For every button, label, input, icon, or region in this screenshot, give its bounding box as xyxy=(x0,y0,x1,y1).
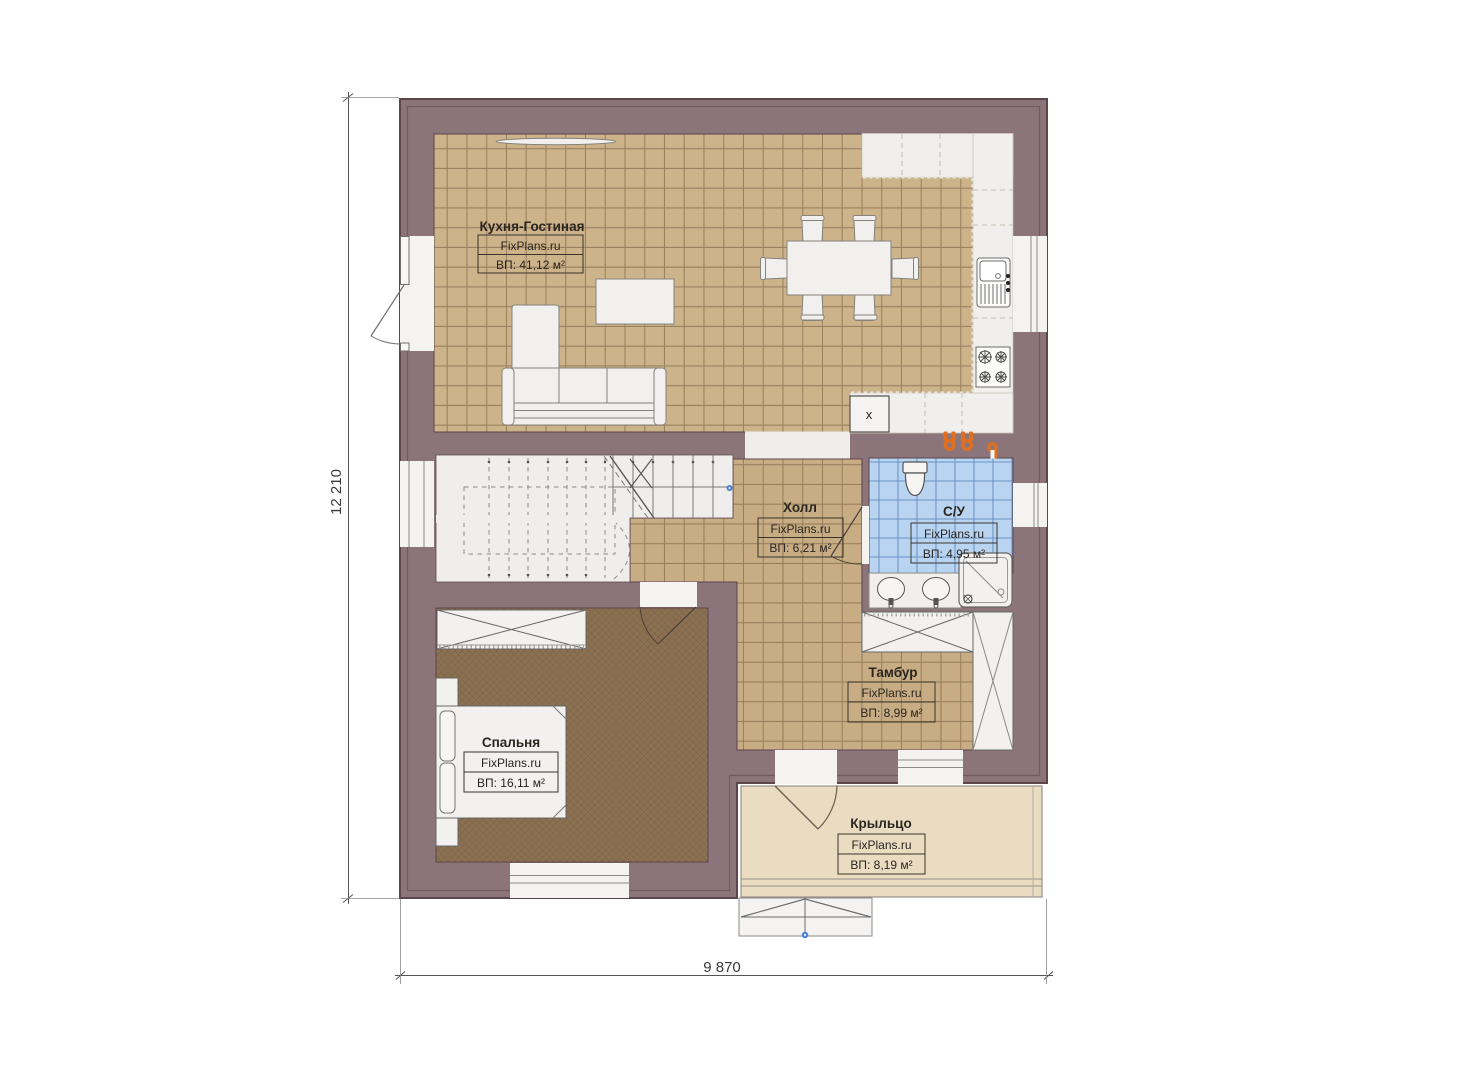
svg-text:Спальня: Спальня xyxy=(482,735,540,750)
svg-text:ВП: 8,19 м²: ВП: 8,19 м² xyxy=(850,858,912,872)
svg-text:Крыльцо: Крыльцо xyxy=(850,816,911,831)
svg-text:9 870: 9 870 xyxy=(703,959,741,976)
svg-text:ВП: 41,12 м²: ВП: 41,12 м² xyxy=(496,258,565,272)
svg-text:FixPlans.ru: FixPlans.ru xyxy=(851,838,911,852)
svg-text:FixPlans.ru: FixPlans.ru xyxy=(924,527,984,541)
svg-text:Холл: Холл xyxy=(783,500,817,515)
svg-text:FixPlans.ru: FixPlans.ru xyxy=(861,686,921,700)
svg-text:ВП: 6,21 м²: ВП: 6,21 м² xyxy=(769,541,831,555)
svg-text:12 210: 12 210 xyxy=(328,469,345,515)
svg-text:ВП: 8,99 м²: ВП: 8,99 м² xyxy=(860,706,922,720)
svg-text:FixPlans.ru: FixPlans.ru xyxy=(770,522,830,536)
svg-text:ВП: 4,95 м²: ВП: 4,95 м² xyxy=(923,547,985,561)
svg-text:FixPlans.ru: FixPlans.ru xyxy=(500,239,560,253)
svg-text:ВП: 16,11 м²: ВП: 16,11 м² xyxy=(477,776,545,790)
svg-text:С/У: С/У xyxy=(943,504,966,519)
svg-text:x: x xyxy=(866,407,873,422)
svg-text:Тамбур: Тамбур xyxy=(869,665,918,680)
svg-text:Кухня-Гостиная: Кухня-Гостиная xyxy=(480,219,585,234)
svg-text:FixPlans.ru: FixPlans.ru xyxy=(481,756,541,770)
